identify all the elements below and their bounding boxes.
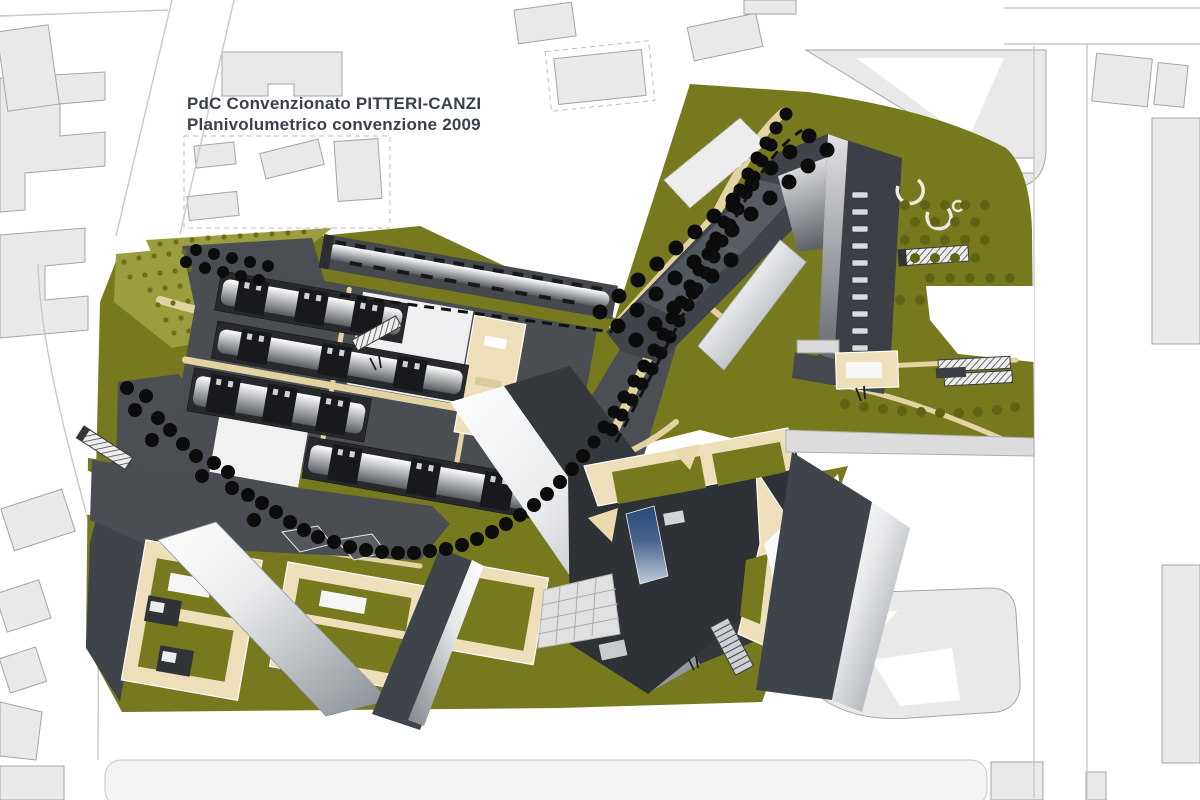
site-plan: PdC Convenzionato PITTERI-CANZI Planivol… xyxy=(0,0,1200,800)
plan-annotation: PdC Convenzionato PITTERI-CANZI Planivol… xyxy=(187,93,481,135)
sidewalk-band xyxy=(105,760,987,800)
plan-subtitle: Planivolumetrico convenzione 2009 xyxy=(187,114,481,135)
plan-title: PdC Convenzionato PITTERI-CANZI xyxy=(187,93,481,114)
site-plan-drawing xyxy=(0,0,1200,800)
